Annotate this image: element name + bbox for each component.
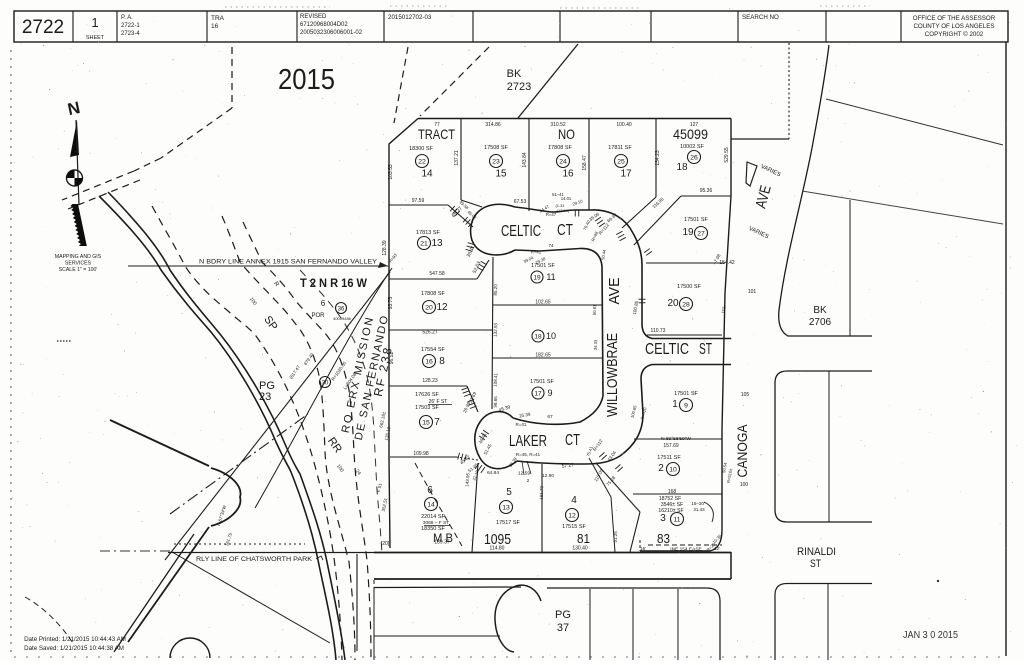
svg-text:11: 11 [546,272,555,282]
svg-text:154.42: 154.42 [719,260,735,266]
svg-text:14: 14 [421,169,433,180]
svg-text:100: 100 [740,482,749,488]
svg-text:23: 23 [492,158,500,165]
svg-text:20: 20 [667,298,679,309]
svg-text:17501 SF: 17501 SF [530,379,554,385]
svg-text:LAKER: LAKER [509,433,547,450]
svg-text:Date Saved: 1/21/2015 10:44:38: Date Saved: 1/21/2015 10:44:38 AM [24,645,124,652]
svg-text:114.80: 114.80 [490,546,505,552]
svg-text:8: 8 [439,356,445,367]
svg-text:15: 15 [422,419,430,426]
svg-text:BK: BK [507,68,522,80]
svg-text:17515 SF: 17515 SF [562,524,586,530]
svg-text:10002 SF: 10002 SF [680,144,704,150]
svg-text:15: 15 [495,169,507,180]
svg-text:16: 16 [562,169,574,180]
svg-text:CELTIC: CELTIC [645,341,689,358]
svg-text:17503 SF: 17503 SF [415,405,439,411]
svg-text:CT: CT [565,432,580,449]
svg-text:74: 74 [548,243,554,248]
svg-text:17: 17 [620,169,632,180]
svg-text:25: 25 [617,158,625,165]
svg-text:CANOGA: CANOGA [734,424,750,478]
svg-text:16′: 16′ [640,546,646,551]
svg-text:83: 83 [657,531,670,546]
svg-text:(13.50): (13.50) [557,208,570,213]
svg-text:37: 37 [557,622,569,634]
svg-text:105: 105 [741,392,750,398]
svg-text:12: 12 [568,512,576,519]
svg-text:N BDRY LINE ANNEX 1915 SAN FER: N BDRY LINE ANNEX 1915 SAN FERNANDO VALL… [199,259,378,266]
svg-text:95.36: 95.36 [700,188,713,194]
svg-text:22: 22 [418,158,426,165]
svg-text:POR: POR [311,313,325,319]
svg-text:NO: NO [558,126,575,142]
svg-text:PG: PG [555,609,571,621]
svg-text:81: 81 [577,531,590,546]
svg-text:134.23: 134.23 [655,150,661,166]
svg-text:110.73: 110.73 [651,328,666,334]
svg-text:16: 16 [211,23,219,30]
svg-text:2015012702-03: 2015012702-03 [388,14,432,21]
svg-text:13: 13 [502,504,510,511]
svg-text:17811 SF: 17811 SF [608,145,632,151]
svg-text:10: 10 [546,331,556,341]
svg-text:181.73: 181.73 [539,485,544,499]
svg-text:TRACT: TRACT [418,126,455,142]
svg-text:17808 SF: 17808 SF [548,145,572,151]
svg-text:182.65: 182.65 [535,353,551,359]
svg-text:64.84: 64.84 [487,470,499,476]
svg-text:12: 12 [436,302,448,313]
svg-text:158.47: 158.47 [582,155,588,171]
svg-text:98.65: 98.65 [493,396,499,408]
svg-text:R=47: R=47 [546,212,557,217]
svg-text:14: 14 [427,501,435,508]
svg-text:6: 6 [427,485,433,496]
svg-text:93.75: 93.75 [388,297,394,310]
svg-text:6: 6 [321,299,326,308]
svg-text:2: 2 [658,463,664,474]
svg-text:17808 SF: 17808 SF [421,291,445,297]
svg-text:101: 101 [748,289,757,295]
svg-text:19: 19 [533,274,541,281]
svg-text:R=45, R=41: R=45, R=41 [516,452,541,457]
svg-text:CT: CT [557,222,573,239]
svg-text:REVISED: REVISED [300,14,327,20]
svg-text:529.55: 529.55 [724,147,730,163]
svg-text:SERVICES: SERVICES [65,261,92,267]
svg-text:97.59: 97.59 [412,198,425,204]
svg-text:2706: 2706 [809,317,832,328]
svg-text:T 2 N R 16 W: T 2 N R 16 W [300,276,368,290]
svg-text:AVE: AVE [606,278,623,305]
svg-text:14.01: 14.01 [561,196,572,201]
svg-text:31.43: 31.43 [693,507,705,512]
svg-text:19: 19 [682,227,694,238]
svg-text:2723-4: 2723-4 [121,31,140,37]
svg-text:17508 SF: 17508 SF [484,145,508,151]
svg-text:COPYRIGHT © 2002: COPYRIGHT © 2002 [925,31,984,38]
svg-text:22014 SF: 22014 SF [421,514,445,520]
svg-text:2723: 2723 [507,81,531,93]
svg-text:50.81: 50.81 [592,304,598,315]
svg-text:45099: 45099 [673,126,708,142]
svg-text:12′: 12′ [714,546,720,551]
svg-text:526.27: 526.27 [422,330,438,336]
svg-text:11: 11 [673,516,680,523]
svg-text:COUNTY OF LOS ANGELES: COUNTY OF LOS ANGELES [913,23,994,30]
svg-text:108.41: 108.41 [493,372,499,387]
svg-text:13: 13 [431,238,443,249]
svg-text:Date Printed: 1/21/2015 10:44:: Date Printed: 1/21/2015 10:44:43 AM [24,636,126,643]
svg-text:9: 9 [547,388,552,398]
svg-text:17626 SF: 17626 SF [415,392,439,398]
svg-text:12.90: 12.90 [542,473,554,479]
svg-text:157.69: 157.69 [663,443,679,449]
svg-text:N 89°58′50″W: N 89°58′50″W [661,436,691,442]
svg-text:R=41: R=41 [516,422,527,427]
svg-text:27: 27 [697,230,705,237]
svg-text:103.53: 103.53 [388,164,394,180]
svg-text:139.37: 139.37 [434,540,450,546]
svg-text:128.23: 128.23 [422,378,438,384]
svg-text:2005032306006001-02: 2005032306006001-02 [300,30,363,36]
svg-text:17813 SF: 17813 SF [416,230,440,236]
svg-text:51.25: 51.25 [613,531,618,543]
svg-text:102.65: 102.65 [535,300,551,306]
svg-text:9: 9 [684,402,688,409]
svg-text:18: 18 [676,162,688,173]
svg-text:17: 17 [534,390,542,397]
svg-text:17554 SF: 17554 SF [421,347,445,353]
svg-text:5: 5 [506,487,512,498]
svg-text:17501 SF: 17501 SF [684,217,708,223]
svg-text:WILLOWBRAE: WILLOWBRAE [604,333,621,417]
svg-text:137.21: 137.21 [454,150,460,166]
svg-text:RLY LINE OF CHATSWORTH PARK: RLY LINE OF CHATSWORTH PARK [196,556,312,563]
svg-text:18: 18 [534,333,542,340]
svg-text:100.40: 100.40 [616,122,632,128]
svg-text:547.58: 547.58 [429,271,445,277]
svg-text:17500 SF: 17500 SF [677,284,701,290]
svg-text:BK: BK [813,305,827,316]
svg-text:7: 7 [434,417,440,428]
svg-text:16: 16 [425,358,433,365]
svg-text:23: 23 [259,391,271,403]
svg-text:3: 3 [660,513,666,524]
svg-text:R=41: R=41 [531,250,542,255]
svg-text:34.33: 34.33 [593,339,599,350]
svg-text:SCALE 1″ = 100′: SCALE 1″ = 100′ [59,267,98,273]
svg-text:4: 4 [571,495,577,506]
svg-text:36: 36 [338,307,345,313]
svg-text:17501 SF: 17501 SF [674,391,698,397]
svg-text:40019486: 40019486 [333,316,352,321]
svg-text:SHEET: SHEET [86,35,105,41]
svg-text:JAN 3 0 2015: JAN 3 0 2015 [903,630,958,641]
svg-text:2722-1: 2722-1 [121,23,140,29]
svg-text:18300 SF: 18300 SF [409,146,433,152]
svg-text:30: 30 [322,381,329,387]
svg-text:INE 154 EASE: INE 154 EASE [670,547,701,553]
svg-text:OFFICE OF THE ASSESSOR: OFFICE OF THE ASSESSOR [913,15,996,22]
svg-text:109.98: 109.98 [413,451,429,457]
svg-text:1: 1 [672,399,678,410]
svg-text:P. A.: P. A. [121,15,133,21]
svg-text:RINALDI: RINALDI [797,546,836,558]
svg-text:TRA: TRA [211,15,225,22]
svg-text:143.84: 143.84 [522,152,528,168]
svg-text:SEARCH NO: SEARCH NO [742,14,779,21]
svg-text:ST: ST [810,558,821,570]
svg-text:1: 1 [91,15,98,30]
svg-text:132.93: 132.93 [493,322,499,337]
svg-text:15–20′: 15–20′ [691,501,705,506]
svg-text:67.53: 67.53 [514,199,527,205]
svg-text:10: 10 [669,466,677,473]
svg-text:2722: 2722 [22,17,64,38]
svg-text:67: 67 [547,414,553,420]
svg-text:85.20: 85.20 [493,284,499,296]
svg-text:20: 20 [425,304,433,311]
svg-text:128.39: 128.39 [382,240,388,256]
svg-text:168: 168 [668,489,677,495]
svg-text:67120968004D02: 67120968004D02 [300,22,348,28]
svg-text:MAPPING AND GIS: MAPPING AND GIS [55,254,102,260]
svg-text:21: 21 [420,240,428,247]
svg-text:CELTIC: CELTIC [501,223,541,240]
svg-text:ST: ST [699,341,712,358]
svg-text:24: 24 [559,158,567,165]
svg-text:17517 SF: 17517 SF [496,520,520,526]
svg-text:[20]: [20] [381,541,390,547]
svg-text:2015: 2015 [278,64,335,96]
svg-text:130.40: 130.40 [572,546,588,552]
svg-text:96.52: 96.52 [389,352,395,365]
svg-text:26: 26 [690,154,698,161]
svg-text:17511 SF: 17511 SF [657,455,681,461]
svg-text:28: 28 [682,301,690,308]
svg-text:314.86: 314.86 [485,122,501,128]
svg-text:2: 2 [527,478,530,484]
svg-text:17501 SF: 17501 SF [531,263,555,269]
